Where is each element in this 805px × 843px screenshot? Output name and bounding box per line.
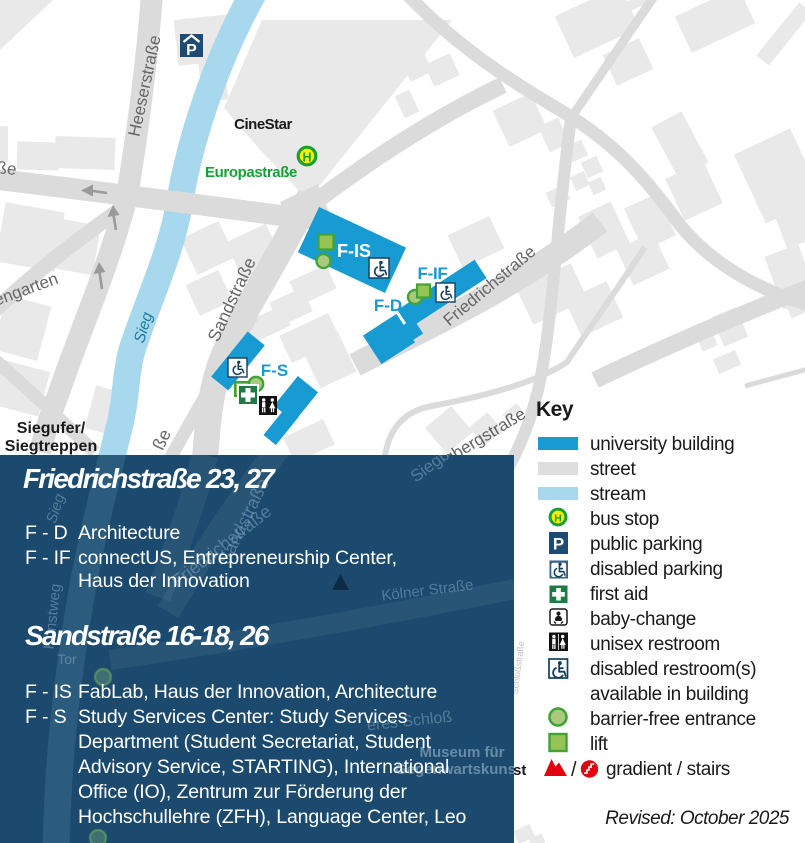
svg-text:F - IS: F - IS xyxy=(25,681,72,703)
svg-text:university building: university building xyxy=(590,434,734,455)
svg-text:available in building: available in building xyxy=(590,684,749,705)
svg-text:public parking: public parking xyxy=(590,534,702,555)
svg-text:stream: stream xyxy=(590,484,646,505)
svg-text:Revised: October 2025: Revised: October 2025 xyxy=(605,808,790,829)
svg-text:Department (Student Secretaria: Department (Student Secretariat, Student xyxy=(78,731,432,753)
svg-text:first aid: first aid xyxy=(590,584,648,605)
svg-text:Friedrichstraße 23, 27: Friedrichstraße 23, 27 xyxy=(23,463,276,494)
svg-text:gradient / stairs: gradient / stairs xyxy=(606,759,730,780)
svg-text:P: P xyxy=(553,535,564,554)
svg-text:Siegtreppen: Siegtreppen xyxy=(5,438,97,455)
svg-text:connectUS, Entrepreneurship Ce: connectUS, Entrepreneurship Center, xyxy=(78,547,397,569)
svg-text:Advisory Service, STARTING), I: Advisory Service, STARTING), Internation… xyxy=(78,756,449,778)
svg-text:lift: lift xyxy=(590,734,609,755)
svg-text:Siegufer/: Siegufer/ xyxy=(17,420,86,437)
svg-text:H: H xyxy=(554,513,562,525)
svg-text:F - IF: F - IF xyxy=(25,547,71,569)
svg-text:F - S: F - S xyxy=(25,706,67,728)
svg-text:F-IS: F-IS xyxy=(337,241,371,261)
svg-text:baby-change: baby-change xyxy=(590,609,696,630)
svg-text:Key: Key xyxy=(536,398,574,421)
svg-text:st: st xyxy=(513,762,526,779)
svg-text:F-S: F-S xyxy=(261,361,288,380)
svg-text:Europastraße: Europastraße xyxy=(205,164,297,181)
svg-text:CineStar: CineStar xyxy=(234,116,292,133)
svg-text:barrier-free entrance: barrier-free entrance xyxy=(590,709,756,730)
svg-text:Sandstraße 16-18, 26: Sandstraße 16-18, 26 xyxy=(25,620,270,651)
svg-text:F-D: F-D xyxy=(374,296,402,315)
svg-text:Study Services Center: Study S: Study Services Center: Study Services xyxy=(78,706,408,728)
svg-text:unisex restroom: unisex restroom xyxy=(590,634,720,655)
svg-text:Tor: Tor xyxy=(57,651,77,667)
svg-text:F - D: F - D xyxy=(25,522,68,544)
svg-text:Haus der Innovation: Haus der Innovation xyxy=(78,570,250,592)
svg-text:disabled parking: disabled parking xyxy=(590,559,723,580)
svg-text:FabLab, Haus der Innovation, A: FabLab, Haus der Innovation, Architectur… xyxy=(78,681,437,703)
svg-text:ße: ße xyxy=(0,158,17,179)
svg-text:H: H xyxy=(302,151,311,165)
svg-text:Hochschullehre (ZFH), Language: Hochschullehre (ZFH), Language Center, L… xyxy=(78,806,467,828)
svg-text:Office (IO), Zentrum zur Förde: Office (IO), Zentrum zur Förderung der xyxy=(78,781,407,803)
svg-text:bus stop: bus stop xyxy=(590,509,659,530)
svg-text:Architecture: Architecture xyxy=(78,522,180,544)
svg-text:P: P xyxy=(186,42,197,59)
svg-text:street: street xyxy=(590,459,636,480)
svg-text:disabled restroom(s): disabled restroom(s) xyxy=(590,659,756,680)
svg-text:F-IF: F-IF xyxy=(418,264,448,283)
